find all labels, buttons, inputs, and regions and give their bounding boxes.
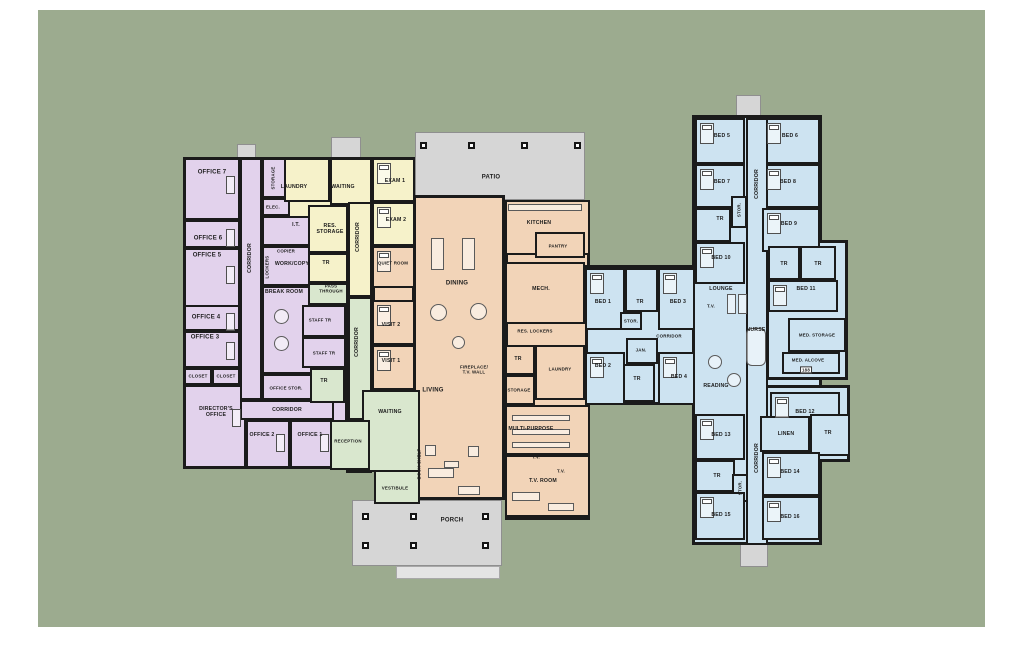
room-label: T.V. — [557, 468, 565, 473]
room-label: RES. STORAGE — [317, 223, 344, 235]
room-label: BED 6 — [782, 133, 798, 139]
room-label: BOOK SHELF — [416, 449, 421, 480]
bed-icon — [767, 501, 781, 522]
room-label: PANTRY — [549, 243, 568, 248]
room-label: LOCKERS — [264, 256, 269, 279]
room-label: JAN. — [636, 347, 647, 352]
table-icon — [430, 304, 447, 321]
desk-icon — [232, 409, 241, 427]
room-label: BED 11 — [796, 286, 815, 292]
room-label: WORK/COPY — [275, 261, 309, 267]
room-label: VISIT 1 — [382, 358, 401, 364]
bed-10 — [695, 242, 745, 284]
directors-office — [184, 385, 246, 468]
room-label: MED. ALCOVE — [792, 357, 825, 362]
desk-icon — [226, 229, 235, 247]
desk-icon — [226, 266, 235, 284]
patio-area — [415, 132, 585, 200]
room-label: MED. STORAGE — [799, 332, 835, 337]
room-label: MECH. — [532, 286, 550, 292]
room-label: NURSE — [746, 327, 765, 333]
room-label: MULTI-PURPOSE — [508, 426, 553, 432]
room-label: CORRIDOR — [247, 243, 253, 273]
bed-icon — [775, 397, 789, 418]
chimney-bump — [331, 137, 361, 159]
table-icon — [274, 336, 289, 351]
room-label: ELEC. — [266, 204, 280, 209]
room-label: 188 — [800, 366, 812, 373]
bed-5 — [695, 118, 745, 164]
room-label: TR — [320, 378, 327, 384]
room-label: I.T. — [292, 222, 300, 228]
room-label: WAITING — [331, 184, 355, 190]
room-label: PORCH — [441, 517, 464, 524]
room-label: BED 9 — [781, 221, 797, 227]
room-label: TR — [633, 376, 640, 382]
wing-bottom-bump — [740, 544, 768, 567]
room-label: CORRIDOR — [272, 407, 302, 413]
column-marker — [574, 142, 581, 149]
room-label: TR — [814, 261, 821, 267]
room-label: BED 16 — [780, 514, 799, 520]
room-label: TR — [514, 356, 521, 362]
furniture-icon — [468, 446, 479, 457]
room-label: TR — [636, 299, 643, 305]
bed-2 — [585, 352, 625, 405]
bed-icon — [590, 273, 604, 294]
porch-area — [352, 500, 502, 566]
room-label: EXAM 1 — [385, 178, 406, 184]
room-label: CORRIDOR — [656, 333, 682, 338]
floor-plan: OFFICE 7OFFICE 6OFFICE 5OFFICE 4OFFICE 3… — [0, 0, 1024, 663]
tr-mid-2 — [623, 364, 655, 402]
furniture-icon — [548, 503, 574, 511]
room-label: PASS THROUGH — [319, 284, 343, 295]
corridor-west — [240, 158, 262, 400]
room-label: CLOSET — [216, 373, 235, 378]
furniture-icon — [462, 238, 475, 270]
desk-icon — [276, 434, 285, 452]
column-marker — [482, 513, 489, 520]
desk-icon — [226, 342, 235, 360]
room-label: TR — [322, 260, 329, 266]
column-marker — [410, 513, 417, 520]
floor-plan-drawing: OFFICE 7OFFICE 6OFFICE 5OFFICE 4OFFICE 3… — [0, 0, 1024, 663]
room-label: READING — [703, 383, 728, 389]
room-label: BREAK ROOM — [265, 289, 303, 295]
bed-icon — [700, 123, 714, 144]
table-icon — [727, 373, 741, 387]
bed-icon — [700, 169, 714, 190]
room-label: CORRIDOR — [355, 222, 361, 252]
room-label: KITCHEN — [527, 220, 551, 226]
column-marker — [410, 542, 417, 549]
room-label: BED 12 — [795, 409, 814, 415]
room-label: LOUNGE — [709, 286, 732, 292]
furniture-icon — [431, 238, 444, 270]
bed-icon — [767, 123, 781, 144]
table-icon — [274, 309, 289, 324]
laundry-common — [535, 345, 585, 400]
room-label: BED 13 — [711, 432, 730, 438]
office-6 — [184, 220, 240, 248]
room-label: OFFICE 3 — [191, 334, 220, 341]
column-marker — [362, 542, 369, 549]
furniture-icon — [458, 486, 480, 495]
room-label: QUIET ROOM — [378, 260, 408, 265]
bed-icon — [663, 273, 677, 294]
room-label: RES. LOCKERS — [517, 328, 552, 333]
furniture-icon — [512, 415, 570, 421]
furniture-icon — [425, 445, 436, 456]
room-label: TR — [824, 430, 831, 436]
porch-step — [396, 566, 500, 579]
room-label: STAFF TR — [313, 350, 336, 355]
column-marker — [468, 142, 475, 149]
bed-6 — [762, 118, 820, 164]
tr-entry — [310, 368, 345, 403]
room-label: LINEN — [778, 431, 795, 437]
desk-icon — [226, 176, 235, 194]
room-label: EXAM 2 — [386, 217, 407, 223]
quiet-room — [372, 246, 415, 288]
laundry-clinic — [284, 158, 330, 202]
room-label: CORRIDOR — [754, 169, 760, 199]
column-marker — [521, 142, 528, 149]
room-label: BED 4 — [671, 374, 687, 380]
furniture-icon — [738, 294, 747, 314]
furniture-icon — [508, 204, 582, 211]
room-label: CORRIDOR — [754, 443, 760, 473]
room-label: OFFICE 4 — [192, 314, 221, 321]
column-marker — [362, 513, 369, 520]
table-icon — [452, 336, 465, 349]
bed-icon — [767, 213, 781, 234]
column-marker — [420, 142, 427, 149]
furniture-icon — [444, 461, 459, 468]
furniture-icon — [428, 468, 454, 478]
room-label: VISIT 2 — [382, 322, 401, 328]
exam-2 — [372, 202, 415, 246]
room-label: WAITING — [378, 409, 402, 415]
room-label: T.V. — [707, 303, 715, 308]
room-label: LIVING — [422, 387, 443, 394]
room-label: BED 8 — [780, 179, 796, 185]
room-label: LAUNDRY — [281, 184, 308, 190]
room-label: VESTIBULE — [382, 485, 408, 490]
bed-icon — [773, 285, 787, 306]
furniture-icon — [746, 328, 766, 366]
bed-8 — [762, 164, 820, 208]
furniture-icon — [512, 492, 540, 501]
room-label: LAUNDRY — [549, 366, 572, 371]
room-label: OFFICE 2 — [250, 432, 275, 438]
room-label: TR — [713, 473, 720, 479]
reception-room — [330, 420, 370, 470]
mech-room — [505, 262, 585, 324]
room-label: STAFF TR — [309, 317, 332, 322]
room-label: TR — [716, 216, 723, 222]
room-label: BED 2 — [595, 363, 611, 369]
room-label: TR — [780, 261, 787, 267]
tr-mid-1 — [625, 268, 658, 312]
room-label: OFFICE 6 — [194, 235, 223, 242]
wing-top-bump — [736, 95, 761, 116]
room-label: OFFICE 7 — [198, 169, 227, 176]
room-label: PATIO — [482, 174, 500, 181]
waiting-entry — [362, 390, 420, 472]
room-label: BED 15 — [711, 512, 730, 518]
column-marker — [482, 542, 489, 549]
room-label: STORAGE — [270, 166, 275, 189]
room-label: OFFICE STOR. — [269, 385, 302, 390]
room-label: BED 1 — [595, 299, 611, 305]
room-label: STOR. — [736, 203, 741, 217]
room-label: STORAGE — [507, 387, 530, 392]
visit-1 — [372, 345, 415, 390]
waiting-clinic — [330, 158, 372, 205]
room-label: OFFICE 1 — [298, 432, 323, 438]
room-label: RECEPTION — [334, 438, 361, 443]
bed-11 — [768, 280, 838, 312]
room-label: STOR. — [624, 318, 638, 323]
room-label: COPIER — [277, 248, 295, 253]
desk-icon — [226, 313, 235, 331]
room-label: CLOSET — [188, 373, 207, 378]
room-label: BED 5 — [714, 133, 730, 139]
office-7 — [184, 158, 240, 220]
room-label: T.V. ROOM — [529, 478, 557, 484]
room-label: FIREPLACE/ T.V. WALL — [460, 365, 488, 376]
office-2 — [246, 420, 290, 468]
bed-icon — [767, 457, 781, 478]
room-label: CORRIDOR — [354, 327, 360, 357]
room-label: BED 3 — [670, 299, 686, 305]
furniture-icon — [512, 442, 570, 448]
room-label: DIRECTOR'S OFFICE — [199, 406, 233, 418]
office-1 — [290, 420, 334, 468]
tr-wing-1 — [695, 208, 731, 242]
room-label: STOR. — [737, 481, 742, 495]
room-label: BED 7 — [714, 179, 730, 185]
furniture-icon — [727, 294, 736, 314]
tr-clinic — [308, 253, 348, 283]
room-label: OFFICE 5 — [193, 252, 222, 259]
room-label: BED 14 — [780, 469, 799, 475]
table-icon — [708, 355, 722, 369]
room-label: BED 10 — [711, 255, 730, 261]
table-icon — [470, 303, 487, 320]
room-label: T.V. — [532, 454, 540, 459]
room-label: DINING — [446, 280, 468, 287]
